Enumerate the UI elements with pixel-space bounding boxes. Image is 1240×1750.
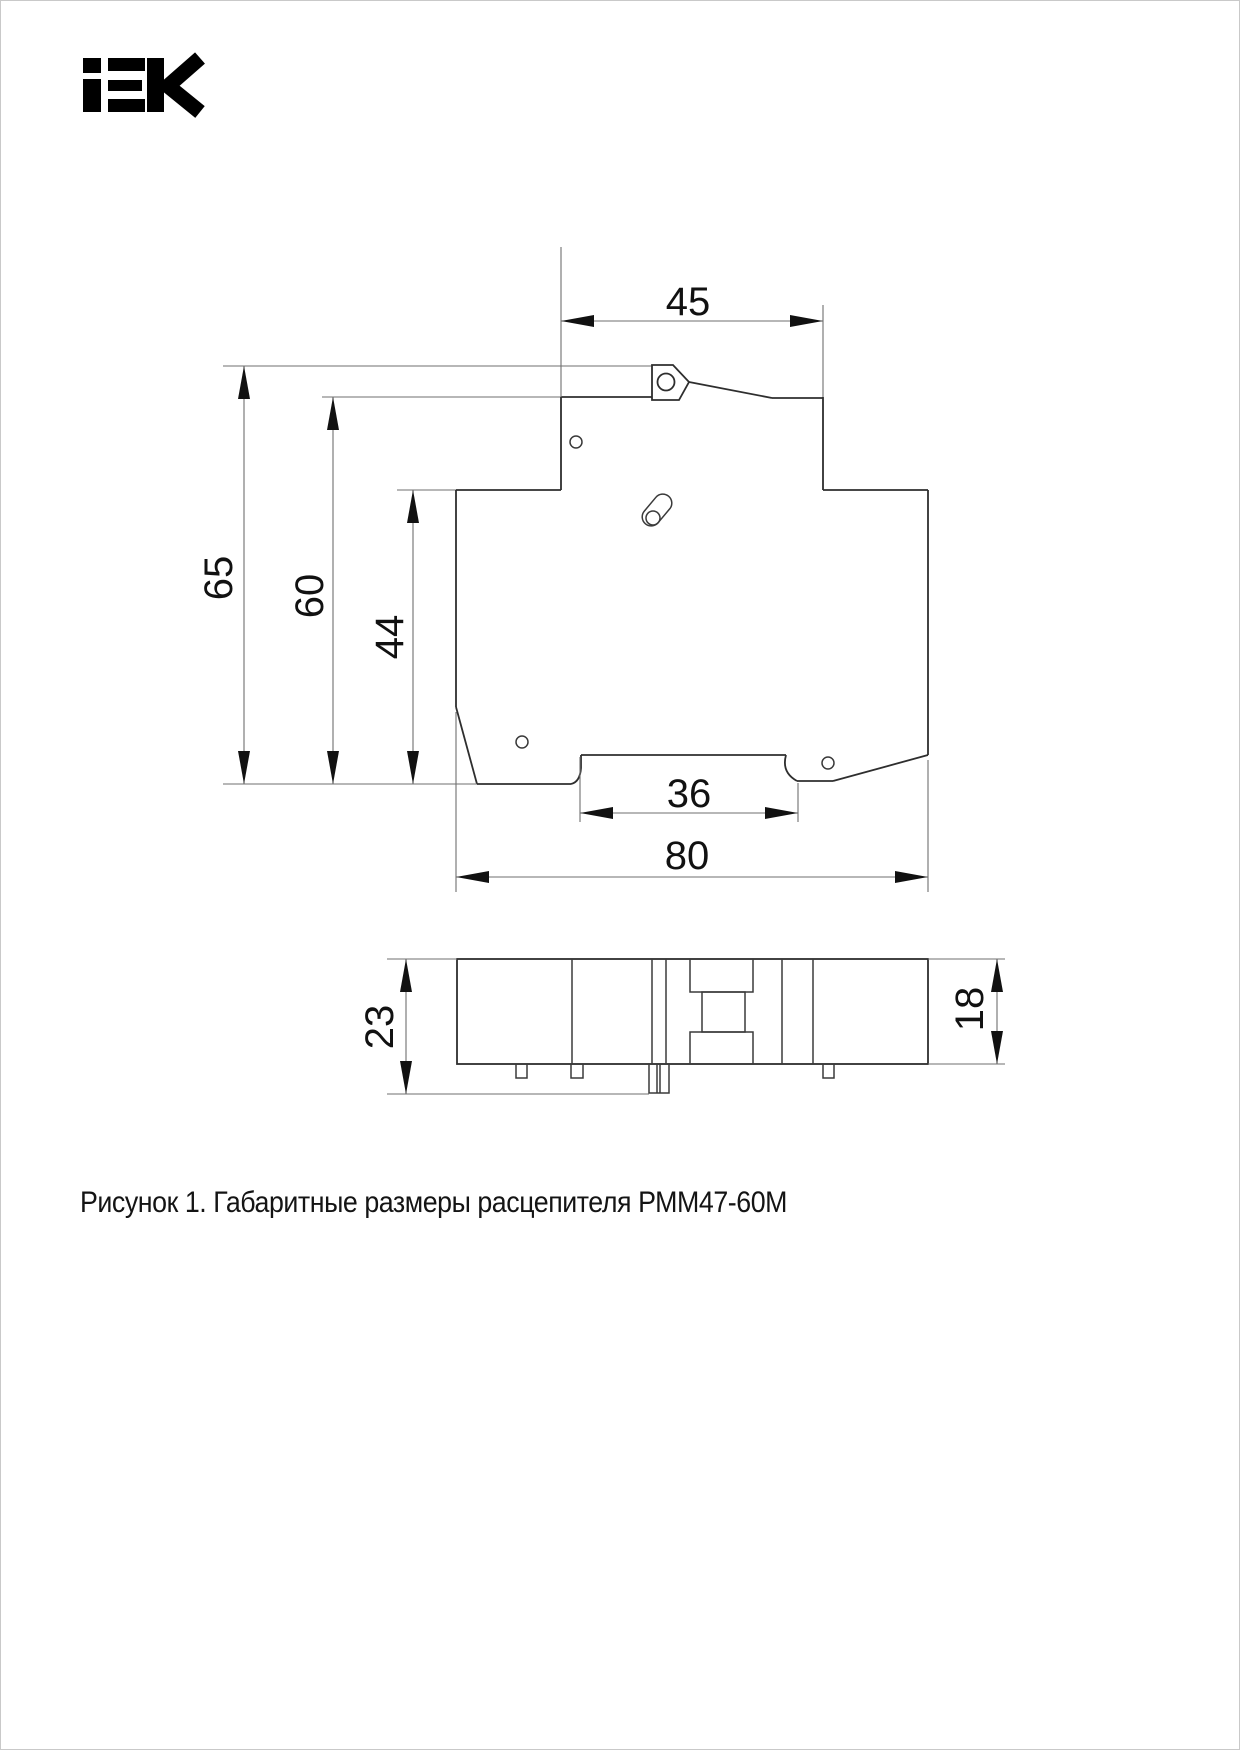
dim-18-label: 18: [948, 987, 992, 1032]
logo-e-bottom-bar: [108, 99, 145, 112]
page-background: [0, 0, 1240, 1750]
dim-80-label: 80: [665, 834, 710, 878]
logo-i-dot: [83, 58, 101, 73]
dim-45-label: 45: [666, 280, 711, 324]
dim-36-label: 36: [667, 772, 712, 816]
dim-44-label: 44: [368, 615, 412, 660]
dim-23-label: 23: [358, 1005, 402, 1050]
technical-drawing: 45 65 60 44: [0, 0, 1240, 1750]
dim-65-label: 65: [197, 556, 241, 601]
logo-e-mid-bar: [108, 80, 142, 91]
figure-caption: Рисунок 1. Габаритные размеры расцепител…: [80, 1186, 787, 1219]
document-page: 45 65 60 44: [0, 0, 1240, 1750]
side-body: [457, 959, 928, 1064]
dim-60-label: 60: [288, 574, 332, 619]
logo-i-stem: [83, 79, 101, 112]
logo-e-top-bar: [108, 58, 145, 71]
